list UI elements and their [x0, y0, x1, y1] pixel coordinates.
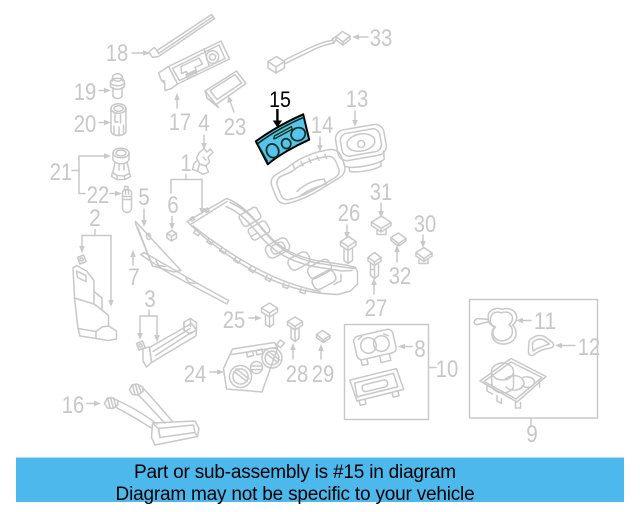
svg-text:9: 9	[526, 421, 538, 448]
svg-text:23: 23	[224, 114, 247, 141]
svg-text:Diagram may not be specific to: Diagram may not be specific to your vehi…	[116, 484, 475, 505]
svg-text:17: 17	[169, 109, 192, 136]
svg-text:Part or sub-assembly is #15 in: Part or sub-assembly is #15 in diagram	[134, 462, 456, 483]
svg-text:21: 21	[50, 159, 73, 186]
svg-text:19: 19	[74, 79, 97, 106]
svg-text:33: 33	[370, 25, 393, 52]
svg-text:1: 1	[180, 150, 192, 177]
svg-text:16: 16	[62, 392, 85, 419]
svg-text:14: 14	[311, 112, 334, 139]
svg-text:13: 13	[346, 86, 369, 113]
svg-text:6: 6	[167, 192, 179, 219]
svg-text:2: 2	[89, 205, 101, 232]
svg-text:8: 8	[414, 336, 426, 363]
svg-text:31: 31	[370, 179, 393, 206]
svg-text:29: 29	[312, 361, 335, 388]
svg-text:15: 15	[269, 87, 291, 112]
svg-text:20: 20	[74, 111, 97, 138]
svg-text:4: 4	[198, 110, 210, 137]
svg-text:32: 32	[389, 263, 412, 290]
svg-text:27: 27	[365, 295, 388, 322]
svg-text:26: 26	[338, 200, 361, 227]
svg-text:28: 28	[286, 361, 309, 388]
svg-text:11: 11	[534, 308, 557, 335]
svg-text:7: 7	[128, 264, 140, 291]
svg-text:3: 3	[144, 286, 156, 313]
svg-text:25: 25	[223, 307, 246, 334]
svg-text:12: 12	[578, 334, 601, 361]
svg-text:24: 24	[184, 361, 207, 388]
svg-text:30: 30	[414, 211, 437, 238]
svg-text:5: 5	[138, 184, 150, 211]
svg-text:18: 18	[106, 40, 129, 67]
svg-text:10: 10	[436, 356, 459, 383]
